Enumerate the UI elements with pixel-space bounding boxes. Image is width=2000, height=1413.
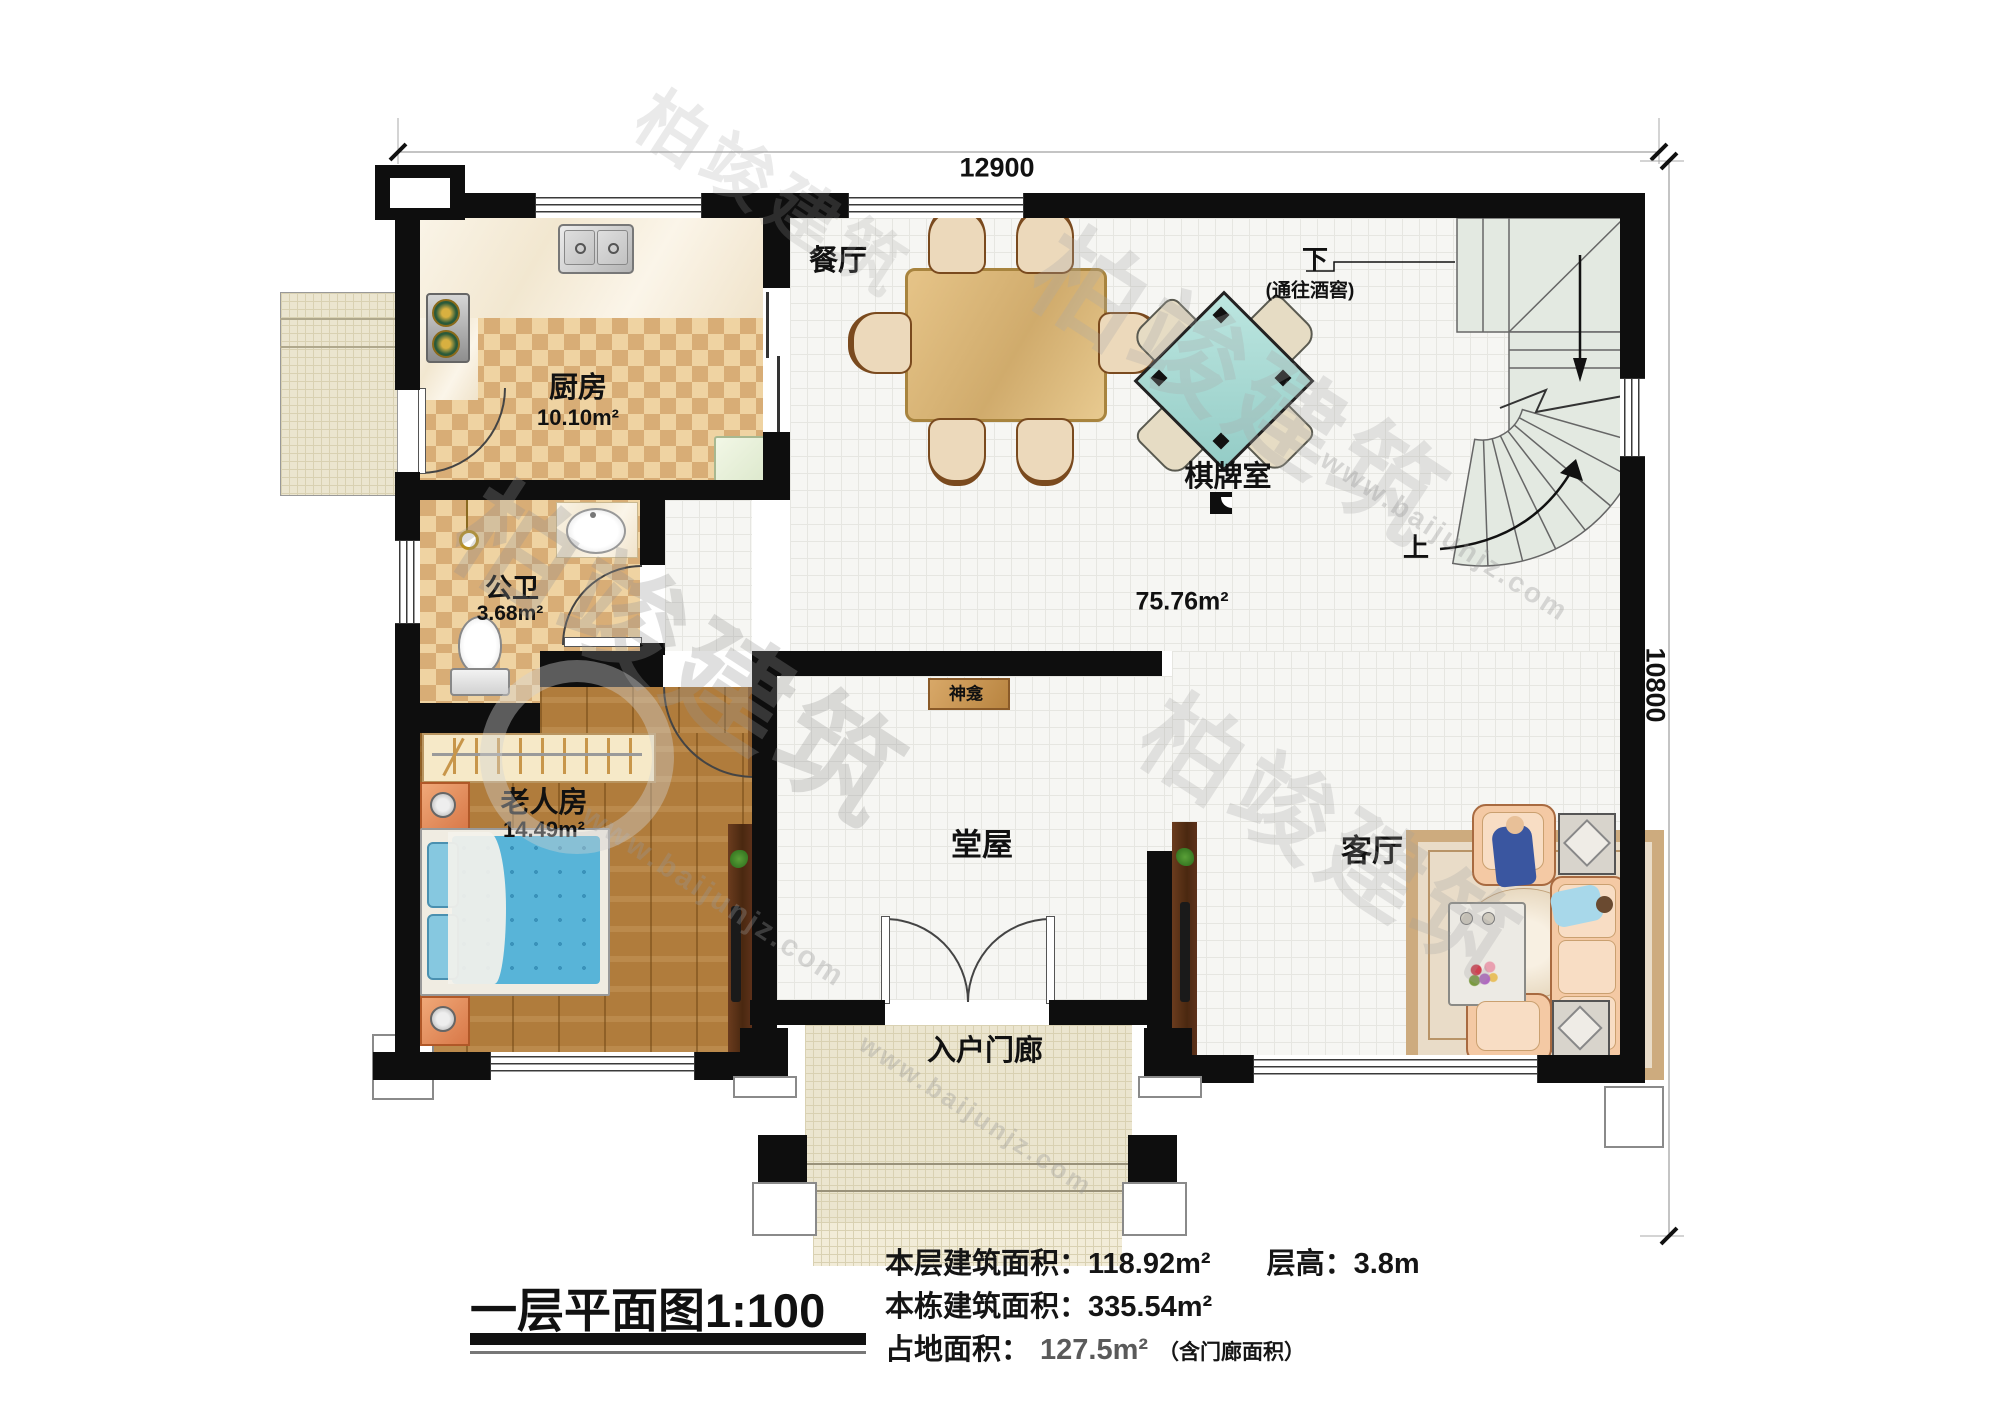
hall-bottom-wall-right — [1049, 1000, 1149, 1025]
plan-title-name: 一层平面图 — [470, 1284, 705, 1337]
floor-area-text: 本层建筑面积：118.92m² — [885, 1240, 1211, 1282]
kitchen-sliding-door — [766, 292, 769, 358]
land-area-note: （含门廊面积） — [1158, 1336, 1305, 1366]
porch-column-bl-base — [752, 1182, 817, 1236]
shrine-label: 神龛 — [949, 680, 983, 705]
left-wall-upper — [395, 218, 420, 390]
stairs-down-label: 下 — [1302, 240, 1328, 277]
living-tv-wall — [1147, 851, 1172, 1055]
bedroom-window — [490, 1052, 695, 1080]
kitchen-label: 厨房 — [549, 364, 607, 406]
title-underline-thick — [470, 1333, 866, 1345]
bedroom-right-wall — [752, 651, 777, 1080]
porch-column-bl — [758, 1135, 807, 1182]
entry-door-leaf-left — [881, 916, 890, 1004]
bath-bedroom-wall-right — [540, 651, 663, 687]
plan-title: 一层平面图1:100 — [470, 1272, 825, 1341]
entry-door-leaf-right — [1046, 916, 1055, 1004]
land-area-value: 127.5m² — [1040, 1334, 1148, 1367]
porch-label: 入户门廊 — [927, 1027, 1043, 1069]
porch-column-br — [1128, 1135, 1177, 1182]
open-area-label: 75.76m² — [1135, 588, 1228, 617]
stats-line-1: 本层建筑面积：118.92m² 层高：3.8m — [885, 1240, 1420, 1282]
bathroom-door-leaf — [564, 637, 642, 647]
living-label: 客厅 — [1341, 826, 1403, 871]
bath-area-label: 3.68m² — [477, 602, 544, 626]
porch-column-tr — [1144, 1028, 1192, 1078]
floor-plan-canvas: 12900 10800 餐厅 厨房 10.10m² 棋牌室 下 (通往酒窖) 上… — [0, 0, 2000, 1413]
hall-label: 堂屋 — [951, 820, 1013, 865]
living-window — [1253, 1055, 1538, 1083]
kitchen-sliding-door-2 — [777, 356, 780, 432]
kitchen-right-wall-top — [763, 218, 790, 288]
plan-title-scale: 1:100 — [705, 1284, 825, 1337]
stairs-up-label: 上 — [1403, 528, 1429, 565]
kitchen-window — [535, 193, 702, 218]
building-area-text: 本栋建筑面积：335.54m² — [885, 1283, 1212, 1325]
floor-height-text: 层高：3.8m — [1267, 1240, 1420, 1282]
dim-top-label: 12900 — [959, 153, 1034, 184]
bedroom-area-label: 14.49m² — [503, 817, 585, 843]
title-underline-thin — [470, 1351, 866, 1354]
kitchen-area-label: 10.10m² — [537, 405, 619, 431]
bath-label: 公卫 — [485, 567, 539, 606]
land-area-label: 占地面积： — [885, 1326, 1030, 1368]
kitchen-right-wall-bottom — [763, 432, 790, 500]
kitchen-bath-wall — [420, 480, 765, 500]
stats-line-3: 占地面积： 127.5m² （含门廊面积） — [885, 1326, 1305, 1368]
stairs-down-note: (通往酒窖) — [1266, 276, 1355, 303]
chess-room-label: 棋牌室 — [1184, 453, 1271, 495]
left-wall-mid — [395, 472, 420, 540]
kitchen-side-door-leaf — [418, 388, 426, 474]
bathroom-window — [395, 540, 420, 624]
stair-window — [1620, 378, 1645, 457]
right-wall-upper — [1620, 218, 1645, 378]
dining-window — [848, 193, 1024, 218]
porch-column-tl-base — [733, 1076, 797, 1098]
bath-right-wall-top — [640, 500, 665, 565]
porch-column-tr-base — [1138, 1076, 1202, 1098]
left-wall-lower — [395, 622, 420, 1080]
porch-column-br-base — [1122, 1182, 1187, 1236]
stats-line-2: 本栋建筑面积：335.54m² — [885, 1283, 1212, 1325]
porch-column-tl — [740, 1028, 788, 1078]
bath-bedroom-wall-left — [420, 703, 540, 733]
right-wall-lower — [1620, 455, 1645, 1080]
bedroom-label: 老人房 — [500, 779, 587, 821]
chimney-flue — [390, 178, 450, 208]
hall-top-wall — [777, 651, 1162, 676]
dining-label: 餐厅 — [809, 237, 867, 279]
